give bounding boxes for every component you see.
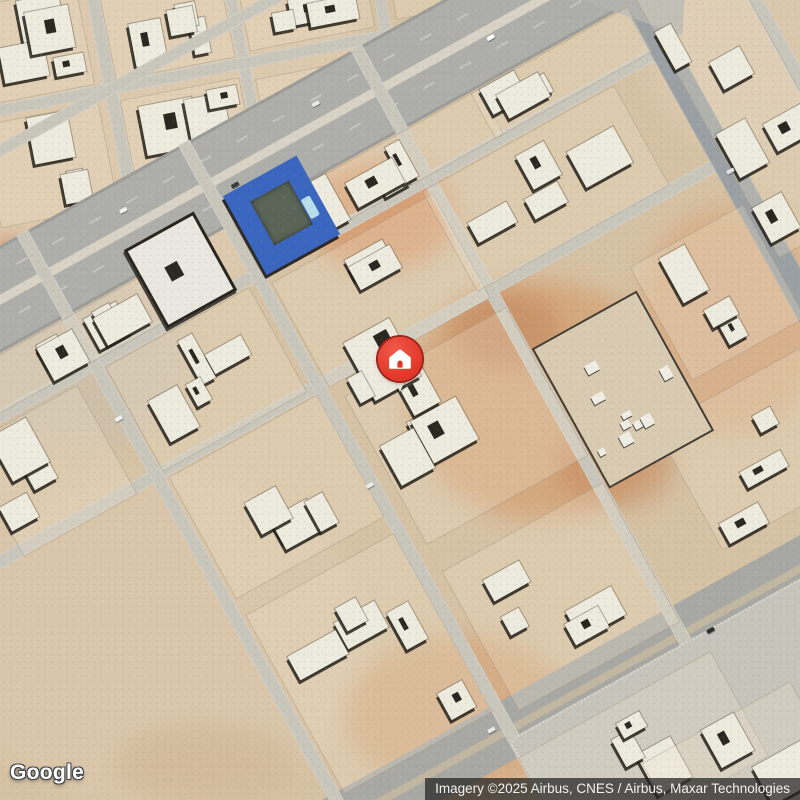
courtyard (427, 421, 444, 440)
satellite-map-canvas[interactable]: Google Imagery ©2025 Airbus, CNES / Airb… (0, 0, 800, 800)
courtyard (765, 209, 778, 224)
courtyard (364, 175, 379, 188)
attribution-text: Imagery ©2025 Airbus, CNES / Airbus, Max… (435, 781, 790, 796)
courtyard (581, 619, 592, 630)
courtyard (192, 386, 199, 395)
courtyard (529, 156, 541, 170)
shed (591, 391, 607, 405)
building (437, 680, 476, 720)
courtyard (727, 323, 735, 332)
building (467, 201, 517, 243)
courtyard (717, 730, 731, 746)
courtyard (164, 260, 184, 281)
courtyard (752, 466, 764, 476)
courtyard (188, 348, 199, 364)
courtyard (407, 384, 419, 398)
building (348, 245, 401, 290)
courtyard (55, 345, 68, 360)
building (566, 126, 633, 188)
building (752, 407, 778, 433)
shed (597, 447, 607, 456)
building (501, 608, 529, 636)
courtyard (777, 121, 791, 134)
courtyard (452, 691, 462, 702)
courtyard (398, 617, 409, 631)
courtyard (368, 259, 381, 271)
courtyard (250, 181, 312, 245)
shed (620, 419, 632, 430)
building (525, 182, 568, 220)
building (287, 631, 348, 681)
shed (659, 365, 674, 382)
street-grid (0, 0, 800, 800)
attribution-bar: Imagery ©2025 Airbus, CNES / Airbus, Max… (425, 778, 800, 800)
building (387, 602, 428, 650)
marker-circle (378, 337, 422, 381)
courtyard (624, 721, 632, 729)
building (709, 47, 754, 91)
building (659, 245, 709, 304)
home-icon (387, 346, 413, 372)
building (0, 493, 39, 532)
shed (618, 431, 634, 447)
building (740, 450, 789, 488)
google-logo[interactable]: Google (10, 761, 84, 785)
building (719, 502, 769, 544)
shed (584, 361, 600, 375)
courtyard (734, 517, 746, 528)
building (763, 102, 800, 151)
building (483, 560, 531, 601)
